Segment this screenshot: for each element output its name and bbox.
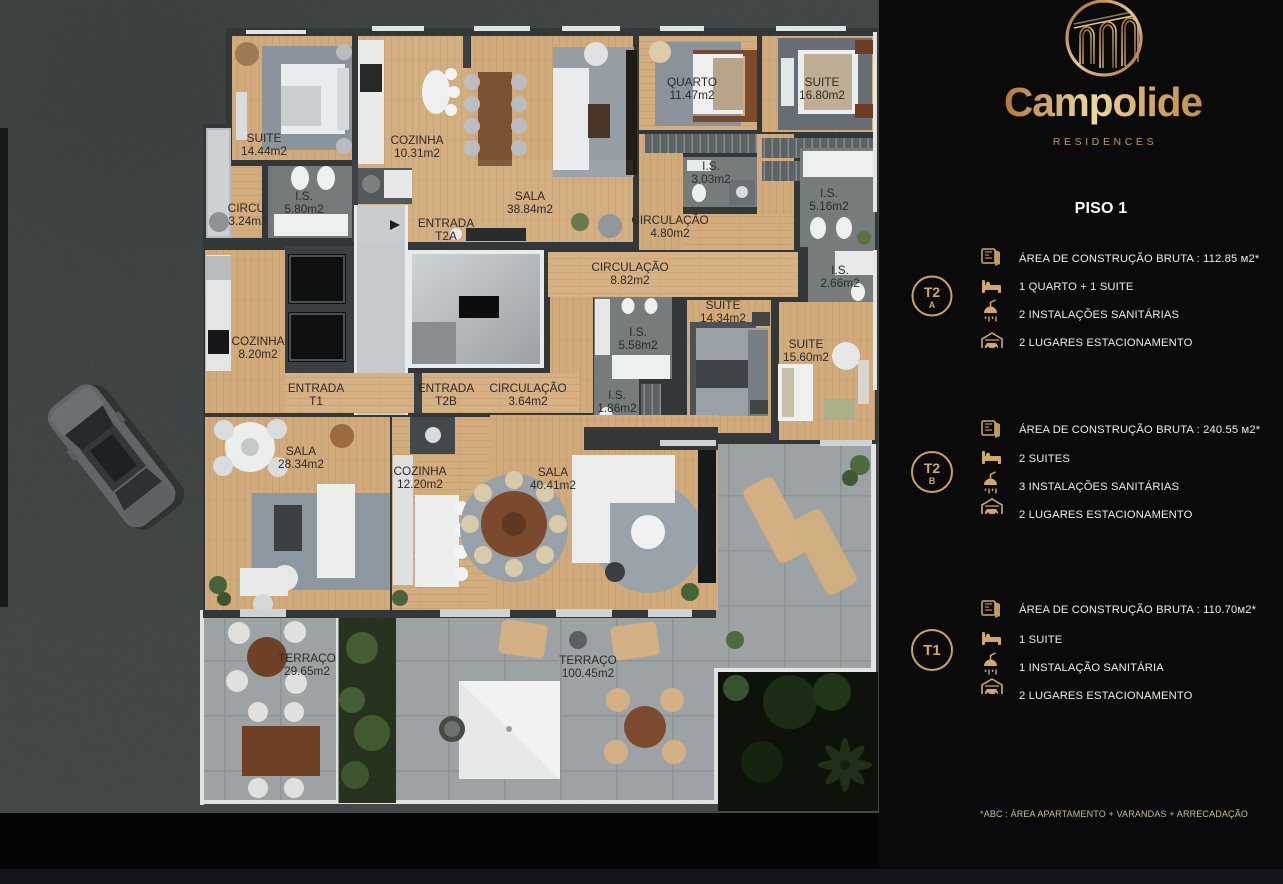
- svg-text:I.S.: I.S.: [608, 388, 626, 402]
- svg-text:COZINHA: COZINHA: [390, 133, 443, 147]
- svg-text:1 QUARTO + 1 SUITE: 1 QUARTO + 1 SUITE: [1019, 281, 1134, 293]
- svg-text:2 LUGARES ESTACIONAMENTO: 2 LUGARES ESTACIONAMENTO: [1019, 690, 1193, 702]
- svg-text:CIRCU.: CIRCU.: [228, 201, 269, 215]
- svg-text:10.31m2: 10.31m2: [394, 146, 440, 160]
- svg-text:SUITE: SUITE: [789, 337, 824, 351]
- svg-text:2 SUITES: 2 SUITES: [1019, 453, 1070, 465]
- svg-text:T2A: T2A: [435, 229, 457, 243]
- svg-text:38.84m2: 38.84m2: [507, 202, 553, 216]
- svg-text:I.S.: I.S.: [831, 263, 849, 277]
- svg-text:5.58m2: 5.58m2: [618, 338, 657, 352]
- svg-text:1 INSTALAÇÃO SANITÁRIA: 1 INSTALAÇÃO SANITÁRIA: [1019, 661, 1164, 674]
- svg-text:T2: T2: [924, 284, 941, 300]
- svg-text:8.20m2: 8.20m2: [238, 347, 277, 361]
- svg-text:3.03m2: 3.03m2: [691, 172, 730, 186]
- svg-text:3.64m2: 3.64m2: [508, 394, 547, 408]
- svg-text:T2B: T2B: [435, 394, 457, 408]
- svg-text:14.34m2: 14.34m2: [700, 311, 746, 325]
- svg-text:RESIDENCES: RESIDENCES: [1053, 136, 1157, 148]
- svg-text:I.S.: I.S.: [702, 159, 720, 173]
- svg-text:4.80m2: 4.80m2: [650, 226, 689, 240]
- svg-text:SUITE: SUITE: [247, 131, 282, 145]
- svg-text:I.S.: I.S.: [820, 186, 838, 200]
- svg-text:CIRCULAÇÃO: CIRCULAÇÃO: [631, 213, 708, 227]
- svg-text:T2: T2: [924, 460, 941, 476]
- svg-text:A: A: [929, 300, 936, 310]
- svg-text:2 LUGARES ESTACIONAMENTO: 2 LUGARES ESTACIONAMENTO: [1019, 337, 1193, 349]
- svg-text:ÁREA DE CONSTRUÇÃO BRUTA : 11: ÁREA DE CONSTRUÇÃO BRUTA : 110.70м2*: [1019, 603, 1257, 616]
- svg-text:ÁREA DE CONSTRUÇÃO BRUTA : 11: ÁREA DE CONSTRUÇÃO BRUTA : 112.85 м2*: [1019, 252, 1260, 265]
- svg-text:SALA: SALA: [515, 189, 545, 203]
- svg-text:ENTRADA: ENTRADA: [418, 381, 475, 395]
- svg-text:SUITE: SUITE: [805, 75, 840, 89]
- svg-text:TERRAÇO: TERRAÇO: [559, 653, 617, 667]
- svg-text:ÁREA DE CONSTRUÇÃO BRUTA : 24: ÁREA DE CONSTRUÇÃO BRUTA : 240.55 м2*: [1019, 423, 1261, 436]
- svg-text:T1: T1: [923, 642, 941, 659]
- svg-text:ENTRADA: ENTRADA: [418, 216, 475, 230]
- svg-text:TERRAÇO: TERRAÇO: [278, 651, 336, 665]
- svg-text:8.82m2: 8.82m2: [610, 273, 649, 287]
- svg-text:12.20m2: 12.20m2: [397, 477, 443, 491]
- svg-text:3 INSTALAÇÕES SANITÁRIAS: 3 INSTALAÇÕES SANITÁRIAS: [1019, 480, 1179, 493]
- svg-text:COZINHA: COZINHA: [231, 334, 284, 348]
- svg-text:T1: T1: [309, 394, 323, 408]
- svg-text:1 SUITE: 1 SUITE: [1019, 634, 1062, 646]
- svg-text:QUARTO: QUARTO: [667, 75, 717, 89]
- svg-text:100.45m2: 100.45m2: [562, 666, 614, 680]
- svg-text:5.80m2: 5.80m2: [284, 202, 323, 216]
- svg-text:CIRCULAÇÃO: CIRCULAÇÃO: [591, 260, 668, 274]
- svg-text:15.60m2: 15.60m2: [783, 350, 829, 364]
- svg-text:ENTRADA: ENTRADA: [288, 381, 345, 395]
- svg-text:SUITE: SUITE: [706, 298, 741, 312]
- svg-text:1.86m2: 1.86m2: [597, 401, 636, 415]
- svg-text:PISO 1: PISO 1: [1075, 200, 1128, 217]
- svg-text:*ABC : ÁREA APARTAMENTO + VAR: *ABC : ÁREA APARTAMENTO + VARANDAS + ARR…: [980, 809, 1248, 819]
- svg-text:B: B: [929, 476, 936, 486]
- svg-text:Campolide: Campolide: [1004, 79, 1203, 125]
- svg-text:I.S.: I.S.: [295, 189, 313, 203]
- svg-text:5.16m2: 5.16m2: [809, 199, 848, 213]
- svg-text:14.44m2: 14.44m2: [241, 144, 287, 158]
- svg-text:28.34m2: 28.34m2: [278, 457, 324, 471]
- svg-text:SALA: SALA: [538, 465, 568, 479]
- svg-text:2.66m2: 2.66m2: [820, 276, 859, 290]
- svg-text:SALA: SALA: [286, 444, 316, 458]
- svg-text:CIRCULAÇÃO: CIRCULAÇÃO: [489, 381, 566, 395]
- svg-text:16.80m2: 16.80m2: [799, 88, 845, 102]
- svg-text:2 LUGARES ESTACIONAMENTO: 2 LUGARES ESTACIONAMENTO: [1019, 509, 1193, 521]
- svg-text:40.41m2: 40.41m2: [530, 478, 576, 492]
- svg-text:29.65m2: 29.65m2: [284, 664, 330, 678]
- svg-text:2 INSTALAÇÕES SANITÁRIAS: 2 INSTALAÇÕES SANITÁRIAS: [1019, 308, 1179, 321]
- svg-text:3.24m2: 3.24m2: [228, 214, 267, 228]
- svg-text:I.S.: I.S.: [629, 325, 647, 339]
- svg-text:COZINHA: COZINHA: [393, 464, 446, 478]
- svg-text:11.47m2: 11.47m2: [669, 88, 714, 102]
